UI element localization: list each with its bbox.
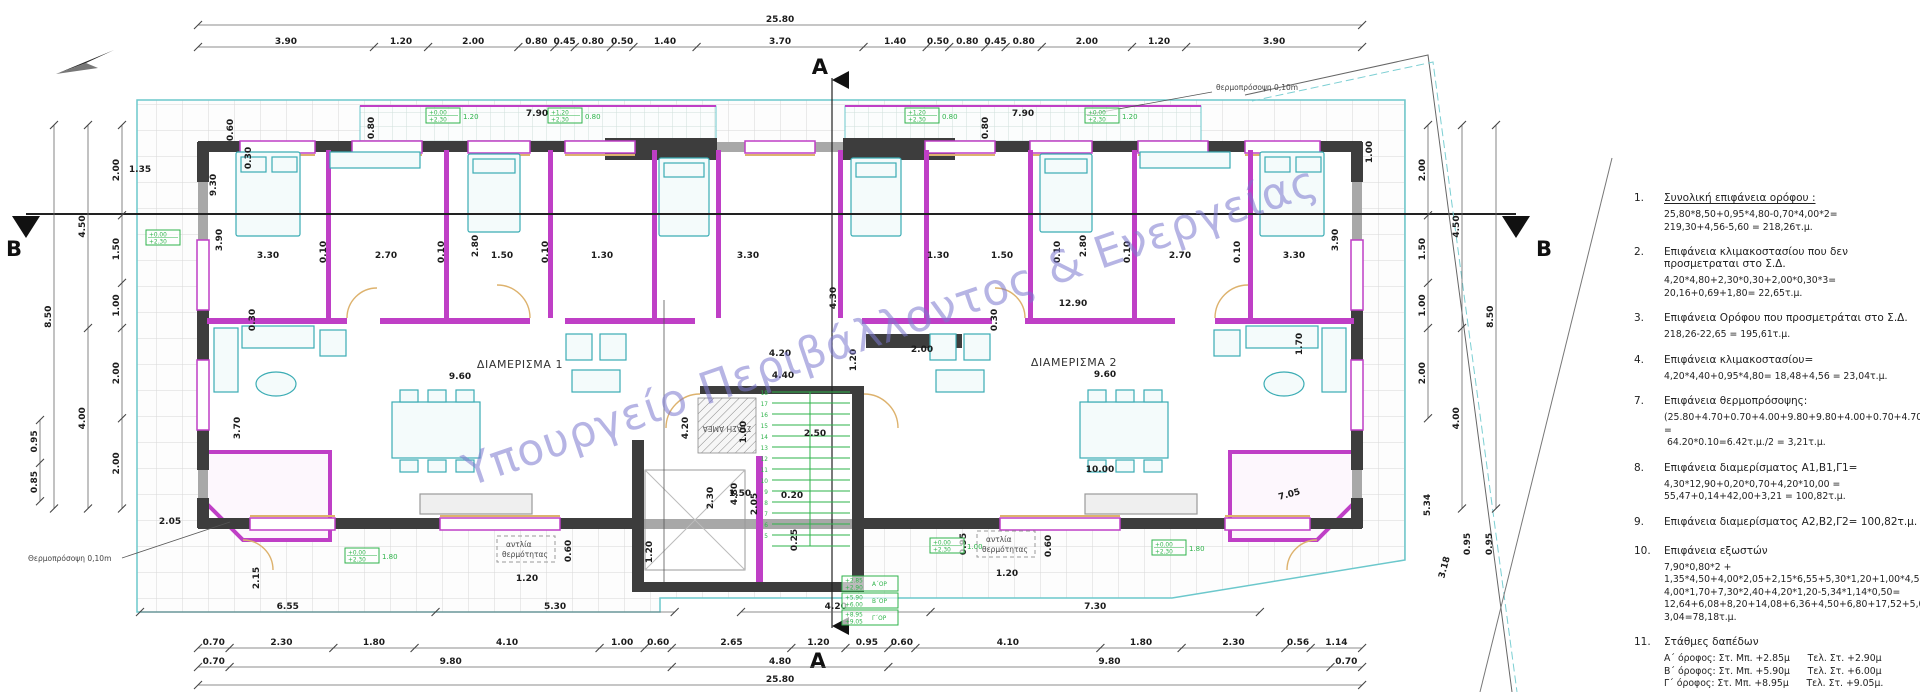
floor-level-name: Α΄ΟΡ (872, 582, 887, 588)
dim-label: 2.00 (1418, 159, 1428, 181)
floor-level-lower: +6.00 (845, 603, 863, 609)
detail-dim-label: 7.90 (526, 109, 548, 119)
detail-dim-label: 0.80 (367, 117, 377, 139)
floor-level-lower: +2.90 (845, 586, 863, 592)
detail-dim-label: 0.95 (1485, 533, 1495, 555)
note-line: 218,26-22,65 = 195,61τ.μ. (1664, 329, 1920, 342)
stair-number: 16 (761, 413, 769, 419)
detail-dim-label: 1.35 (129, 165, 151, 175)
stair-number: 7 (764, 512, 768, 518)
dim-label: 0.80 (1013, 37, 1035, 47)
dim-label: 4.50 (1452, 215, 1462, 237)
dim-label: 4.10 (997, 638, 1019, 648)
dim-label: 9.80 (1098, 657, 1120, 667)
dim-label: 25.80 (766, 675, 794, 685)
note-number: 8. (1634, 462, 1664, 504)
dim-label: 0.50 (927, 37, 949, 47)
detail-dim-label: 0.10 (319, 241, 329, 263)
note-line: 64.20*0.10=6.42τ.μ./2 = 3,21τ.μ. (1664, 437, 1920, 450)
detail-dim-label: 3.30 (1283, 251, 1305, 261)
note-body: Επιφάνεια διαμερίσματος Α2,Β2,Γ2= 100,82… (1664, 516, 1920, 533)
detail-dim-label: 2.15 (252, 567, 262, 589)
level-marker-value: 0.80 (585, 113, 601, 121)
notes-panel: 1.Συνολική επιφάνεια ορόφου :25,80*8,50+… (1634, 192, 1920, 692)
dim-label: 2.00 (1418, 362, 1428, 384)
detail-dim-label: 1.00 (1365, 141, 1375, 163)
level-marker-upper: +1.20 (551, 111, 569, 117)
dim-label: 1.20 (1148, 37, 1170, 47)
level-marker-upper: +0.00 (933, 541, 951, 547)
thermal-facade-bottom-label: Θερμοπρόσοψη 0,10m (28, 554, 111, 563)
floor-level-upper: +8.95 (845, 613, 863, 619)
detail-dim-label: 0.95 (1463, 533, 1473, 555)
note-heading: Επιφάνεια διαμερίσματος Α2,Β2,Γ2= 100,82… (1664, 516, 1920, 528)
level-marker-upper: +0.00 (1155, 543, 1173, 549)
level-marker-lower: +2.30 (551, 118, 569, 124)
note-number: 11. (1634, 636, 1664, 691)
dim-label: 4.10 (496, 638, 518, 648)
floor-level-lower: +9.05 (845, 620, 863, 626)
dim-label: 0.85 (30, 471, 40, 493)
thermal-facade-top-label: θερμοπρόσοψη 0,10m (1216, 83, 1298, 92)
detail-dim-label: 0.30 (248, 309, 258, 331)
apartment2-label: ΔΙΑΜΕΡΙΣΜΑ 2 (1031, 356, 1117, 369)
dim-label: 2.00 (112, 362, 122, 384)
section-marker-a-top-icon (832, 71, 849, 89)
dim-label: 5.30 (544, 602, 566, 612)
note-line: Α΄ όροφος: Στ. Μπ. +2.85μ Τελ. Στ. +2.90… (1664, 653, 1920, 666)
dim-label: 0.70 (203, 638, 225, 648)
note-heading: Συνολική επιφάνεια ορόφου : (1664, 192, 1920, 204)
detail-dim-label: 1.00 (739, 421, 749, 443)
note-body: Στάθμες δαπέδωνΑ΄ όροφος: Στ. Μπ. +2.85μ… (1664, 636, 1920, 691)
dim-label: 2.00 (112, 452, 122, 474)
north-arrow-icon (56, 50, 114, 74)
dim-label: 2.00 (1076, 37, 1098, 47)
level-marker-value: 1.80 (1189, 545, 1205, 553)
detail-dim-label: 2.05 (750, 493, 760, 515)
dim-label: 2.30 (1222, 638, 1244, 648)
level-marker-value: 1.00 (967, 543, 983, 551)
dim-label: 4.00 (1452, 407, 1462, 429)
heat-pump-left-label-2: θερμότητας (502, 550, 548, 559)
dim-label: 0.80 (525, 37, 547, 47)
dim-label: 1.80 (363, 638, 385, 648)
note-body: Επιφάνεια εξωστών7,90*0,80*2 + 1,35*4,50… (1664, 545, 1920, 625)
level-marker-upper: +0.00 (429, 111, 447, 117)
detail-dim-label: 0.20 (781, 491, 803, 501)
note-number: 2. (1634, 246, 1664, 300)
note-line: Β΄ όροφος: Στ. Μπ. +5.90μ Τελ. Στ. +6.00… (1664, 666, 1920, 679)
dim-label: 6.55 (277, 602, 299, 612)
dim-label: 0.80 (956, 37, 978, 47)
note-heading: Στάθμες δαπέδων (1664, 636, 1920, 648)
note-number: 9. (1634, 516, 1664, 533)
note-item: 11.Στάθμες δαπέδωνΑ΄ όροφος: Στ. Μπ. +2.… (1634, 636, 1920, 691)
dim-label: 4.80 (769, 657, 791, 667)
detail-dim-label: 3.30 (737, 251, 759, 261)
note-number: 7. (1634, 395, 1664, 450)
detail-dim-label: 0.80 (981, 117, 991, 139)
level-marker-value: 1.20 (463, 113, 479, 121)
stair-number: 9 (764, 490, 768, 496)
detail-dim-label: 2.00 (911, 345, 933, 355)
dim-label: 8.50 (1486, 306, 1496, 328)
dim-label: 3.90 (1263, 37, 1285, 47)
dim-label: 1.40 (654, 37, 676, 47)
dim-label: 4.00 (78, 407, 88, 429)
note-line: 219,30+4,56-5,60 = 218,26τ.μ. (1664, 222, 1920, 235)
detail-dim-label: 0.60 (1044, 535, 1054, 557)
apartment1-label: ΔΙΑΜΕΡΙΣΜΑ 1 (477, 358, 563, 371)
note-line: (25.80+4.70+0.70+4.00+9.80+9.80+4.00+0.7… (1664, 412, 1920, 437)
dim-label: 1.20 (390, 37, 412, 47)
detail-dim-label: 10.00 (1086, 465, 1114, 475)
detail-dim-label: 0.60 (226, 119, 236, 141)
level-marker-lower: +2.30 (908, 118, 926, 124)
dim-label: 2.00 (112, 159, 122, 181)
dim-label: 1.00 (611, 638, 633, 648)
level-marker-value: 1.80 (382, 553, 398, 561)
note-body: Επιφάνεια διαμερίσματος Α1,Β1,Γ1=4,30*12… (1664, 462, 1920, 504)
dim-label: 0.45 (984, 37, 1006, 47)
level-marker-lower: +2.30 (933, 548, 951, 554)
detail-dim-label: 1.30 (927, 251, 949, 261)
stair-number: 6 (764, 523, 768, 529)
dim-label: 1.00 (112, 294, 122, 316)
detail-dim-label: 1.30 (591, 251, 613, 261)
note-heading: Επιφάνεια θερμοπρόσοψης: (1664, 395, 1920, 407)
note-item: 10.Επιφάνεια εξωστών7,90*0,80*2 + 1,35*4… (1634, 545, 1920, 625)
note-heading: Επιφάνεια κλιμακοστασίου= (1664, 354, 1920, 366)
note-body: Συνολική επιφάνεια ορόφου :25,80*8,50+0,… (1664, 192, 1920, 234)
note-item: 2.Επιφάνεια κλιμακοστασίου που δεν προσμ… (1634, 246, 1920, 300)
section-marker-b-left-icon (12, 216, 40, 238)
stair-number: 5 (764, 534, 768, 540)
dim-label: 1.50 (112, 238, 122, 260)
detail-dim-label: 1.50 (491, 251, 513, 261)
note-number: 1. (1634, 192, 1664, 234)
detail-dim-label: 12.90 (1059, 299, 1087, 309)
section-b-right-label: B (1536, 237, 1552, 261)
stair-number: 17 (761, 402, 769, 408)
note-number: 4. (1634, 354, 1664, 384)
dim-label: 0.50 (611, 37, 633, 47)
level-marker-lower: +2.30 (1088, 118, 1106, 124)
detail-dim-label: 0.25 (790, 529, 800, 551)
dim-label: 1.00 (1418, 294, 1428, 316)
detail-dim-label: 2.80 (471, 235, 481, 257)
level-marker-value: 0.80 (942, 113, 958, 121)
detail-dim-label: 0.60 (564, 540, 574, 562)
level-marker-lower: +2.30 (429, 118, 447, 124)
heat-pump-right-label-1: αντλία (986, 535, 1012, 544)
detail-dim-label: 2.30 (706, 487, 716, 509)
note-line: 25,80*8,50+0,95*4,80-0,70*4,00*2= (1664, 209, 1920, 222)
dim-label: 25.80 (766, 15, 794, 25)
stair-number: 13 (761, 446, 769, 452)
detail-dim-label: 1.70 (1295, 333, 1305, 355)
note-number: 10. (1634, 545, 1664, 625)
dim-label: 0.56 (1287, 638, 1309, 648)
level-marker-upper: +0.00 (348, 551, 366, 557)
stair-lobby-floor (632, 521, 864, 584)
dim-label: 1.20 (807, 638, 829, 648)
note-item: 3.Επιφάνεια Ορόφου που προσμετράται στο … (1634, 312, 1920, 342)
stair-number: 14 (761, 435, 769, 441)
level-marker-value: 1.20 (1122, 113, 1138, 121)
note-body: Επιφάνεια Ορόφου που προσμετράται στο Σ.… (1664, 312, 1920, 342)
heat-pump-left-label-1: αντλία (506, 540, 532, 549)
note-body: Επιφάνεια κλιμακοστασίου=4,20*4,40+0,95*… (1664, 354, 1920, 384)
detail-dim-label: 9.60 (1094, 370, 1116, 380)
detail-dim-label: 2.50 (804, 429, 826, 439)
note-item: 7.Επιφάνεια θερμοπρόσοψης:(25.80+4.70+0.… (1634, 395, 1920, 450)
detail-dim-label: 1.50 (729, 489, 751, 499)
level-marker-upper: +0.00 (1088, 111, 1106, 117)
stair-number: 15 (761, 424, 769, 430)
note-line: 4,20*4,40+0,95*4,80= 18,48+4,56 = 23,04τ… (1664, 371, 1920, 384)
detail-dim-label: 7.90 (1012, 109, 1034, 119)
level-marker-lower: +2.30 (149, 240, 167, 246)
note-line: 7,90*0,80*2 + 1,35*4,50+4,00*2,05+2,15*6… (1664, 562, 1920, 587)
section-a-bottom-label: A (810, 649, 827, 673)
detail-dim-label: 0.10 (541, 241, 551, 263)
dim-label: 2.00 (462, 37, 484, 47)
detail-dim-label: 9.30 (209, 174, 219, 196)
level-marker-upper: +1.20 (908, 111, 926, 117)
dim-label: 0.95 (856, 638, 878, 648)
note-item: 4.Επιφάνεια κλιμακοστασίου=4,20*4,40+0,9… (1634, 354, 1920, 384)
dim-label: 0.60 (647, 638, 669, 648)
stair-number: 11 (761, 468, 769, 474)
detail-dim-label: 3.90 (215, 229, 225, 251)
stair-number: 10 (761, 479, 769, 485)
dim-label: 1.40 (884, 37, 906, 47)
dim-label: 1.50 (1418, 238, 1428, 260)
dim-label: 1.14 (1325, 638, 1347, 648)
dim-label: 2.65 (720, 638, 742, 648)
note-item: 9.Επιφάνεια διαμερίσματος Α2,Β2,Γ2= 100,… (1634, 516, 1920, 533)
detail-dim-label: 1.20 (645, 541, 655, 563)
stair-number: 12 (761, 457, 769, 463)
dim-label: 3.70 (769, 37, 791, 47)
dim-label: 0.95 (30, 430, 40, 452)
dim-label: 7.30 (1084, 602, 1106, 612)
dim-label: 0.70 (203, 657, 225, 667)
floor-level-upper: +2.85 (845, 579, 863, 585)
dim-label: 0.70 (1335, 657, 1357, 667)
dim-label: 8.50 (44, 306, 54, 328)
detail-dim-label: 2.05 (159, 517, 181, 527)
level-marker-lower: +2.30 (1155, 550, 1173, 556)
note-body: Επιφάνεια κλιμακοστασίου που δεν προσμετ… (1664, 246, 1920, 300)
stair-number: 8 (764, 501, 768, 507)
drawing-sheet: B B A A Θερμοπρόσοψη 0,10m θερμοπρόσοψη … (0, 0, 1920, 692)
heat-pump-right-label-2: θερμότητας (982, 545, 1028, 554)
dim-label: 0.80 (582, 37, 604, 47)
detail-dim-label: 3.18 (1437, 555, 1452, 579)
note-body: Επιφάνεια θερμοπρόσοψης:(25.80+4.70+0.70… (1664, 395, 1920, 450)
note-line: Γ΄ όροφος: Στ. Μπ. +8.95μ Τελ. Στ. +9.05… (1664, 678, 1920, 691)
detail-dim-label: 5.34 (1423, 494, 1433, 516)
detail-dim-label: 3.30 (257, 251, 279, 261)
level-marker-lower: +2.30 (348, 558, 366, 564)
section-b-left-label: B (6, 237, 22, 261)
detail-dim-label: 0.10 (1233, 241, 1243, 263)
note-item: 8.Επιφάνεια διαμερίσματος Α1,Β1,Γ1=4,30*… (1634, 462, 1920, 504)
note-line: 4,20*4,80+2,30*0,30+2,00*0,30*3= 20,16+0… (1664, 275, 1920, 300)
detail-dim-label: 9.60 (449, 372, 471, 382)
dim-label: 4.50 (78, 215, 88, 237)
floor-plan-canvas: B B A A Θερμοπρόσοψη 0,10m θερμοπρόσοψη … (0, 0, 1920, 692)
dim-label: 2.30 (270, 638, 292, 648)
note-heading: Επιφάνεια κλιμακοστασίου που δεν προσμετ… (1664, 246, 1920, 270)
note-line: 4,00*1,70+7,30*2,40+4,20*1,20-5,34*1,14*… (1664, 587, 1920, 600)
floor-level-name: Γ΄ΟΡ (872, 616, 887, 622)
detail-dim-label: 1.20 (516, 574, 538, 584)
note-number: 3. (1634, 312, 1664, 342)
dim-label: 0.45 (553, 37, 575, 47)
detail-dim-label: 3.70 (233, 417, 243, 439)
dim-label: 9.80 (440, 657, 462, 667)
detail-dim-label: 0.10 (437, 241, 447, 263)
floor-level-upper: +5.90 (845, 596, 863, 602)
note-line: 4,30*12,90+0,20*0,70+4,20*10,00 = 55,47+… (1664, 479, 1920, 504)
note-line: 12,64+6,08+8,20+14,08+6,36+4,50+6,80+17,… (1664, 599, 1920, 624)
note-item: 1.Συνολική επιφάνεια ορόφου :25,80*8,50+… (1634, 192, 1920, 234)
floor-level-name: Β΄ΟΡ (872, 599, 887, 605)
note-heading: Επιφάνεια διαμερίσματος Α1,Β1,Γ1= (1664, 462, 1920, 474)
detail-dim-label: 0.30 (244, 147, 254, 169)
dim-label: 0.60 (891, 638, 913, 648)
dim-label: 3.90 (275, 37, 297, 47)
detail-dim-label: 3.90 (1331, 229, 1341, 251)
level-marker-upper: +0.00 (149, 233, 167, 239)
note-heading: Επιφάνεια εξωστών (1664, 545, 1920, 557)
detail-dim-label: 2.70 (375, 251, 397, 261)
dim-label: 1.80 (1130, 638, 1152, 648)
detail-dim-label: 4.30 (829, 287, 839, 309)
detail-dim-label: 1.20 (996, 569, 1018, 579)
section-marker-b-right-icon (1502, 216, 1530, 238)
section-a-top-label: A (812, 55, 829, 79)
note-heading: Επιφάνεια Ορόφου που προσμετράται στο Σ.… (1664, 312, 1920, 324)
